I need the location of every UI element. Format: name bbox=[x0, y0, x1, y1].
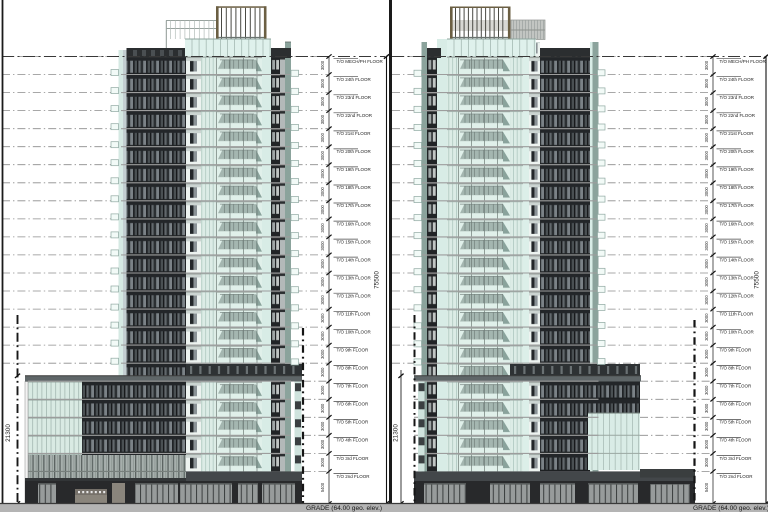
svg-text:T/O 4th FLOOR: T/O 4th FLOOR bbox=[337, 438, 370, 443]
svg-text:3000: 3000 bbox=[320, 60, 325, 70]
svg-text:T/O 6th FLOOR: T/O 6th FLOOR bbox=[337, 402, 370, 407]
svg-text:3000: 3000 bbox=[704, 403, 709, 413]
svg-text:T/O 22nd FLOOR: T/O 22nd FLOOR bbox=[337, 113, 373, 118]
svg-text:T/O 6th FLOOR: T/O 6th FLOOR bbox=[720, 402, 753, 407]
svg-text:3000: 3000 bbox=[704, 313, 709, 323]
svg-text:T/O 19th FLOOR: T/O 19th FLOOR bbox=[337, 167, 372, 172]
svg-text:T/O 7th FLOOR: T/O 7th FLOOR bbox=[720, 384, 753, 389]
svg-text:3000: 3000 bbox=[704, 277, 709, 287]
svg-text:T/O 17th FLOOR: T/O 17th FLOOR bbox=[720, 203, 755, 208]
svg-text:75500: 75500 bbox=[374, 271, 381, 289]
svg-text:3000: 3000 bbox=[320, 313, 325, 323]
svg-text:3000: 3000 bbox=[320, 259, 325, 269]
svg-text:3000: 3000 bbox=[704, 204, 709, 214]
svg-text:3000: 3000 bbox=[704, 186, 709, 196]
svg-text:3000: 3000 bbox=[320, 223, 325, 233]
svg-text:3000: 3000 bbox=[704, 457, 709, 467]
svg-text:3000: 3000 bbox=[320, 96, 325, 106]
svg-text:T/O 15th FLOOR: T/O 15th FLOOR bbox=[720, 239, 755, 244]
svg-text:3000: 3000 bbox=[320, 457, 325, 467]
svg-text:3000: 3000 bbox=[704, 439, 709, 449]
svg-text:3000: 3000 bbox=[704, 295, 709, 305]
svg-text:3000: 3000 bbox=[320, 78, 325, 88]
svg-text:3000: 3000 bbox=[704, 132, 709, 142]
svg-text:T/O 21st FLOOR: T/O 21st FLOOR bbox=[720, 131, 755, 136]
svg-text:T/O 14th FLOOR: T/O 14th FLOOR bbox=[720, 257, 755, 262]
svg-text:T/O 22nd FLOOR: T/O 22nd FLOOR bbox=[720, 113, 756, 118]
svg-text:T/O 21st FLOOR: T/O 21st FLOOR bbox=[337, 131, 372, 136]
svg-text:T/O 18th FLOOR: T/O 18th FLOOR bbox=[720, 185, 755, 190]
svg-text:3000: 3000 bbox=[320, 204, 325, 214]
svg-text:T/O 14th FLOOR: T/O 14th FLOOR bbox=[337, 257, 372, 262]
svg-text:3000: 3000 bbox=[320, 132, 325, 142]
svg-text:3000: 3000 bbox=[320, 186, 325, 196]
svg-text:T/O 24th FLOOR: T/O 24th FLOOR bbox=[337, 77, 372, 82]
svg-text:T/O 13th FLOOR: T/O 13th FLOOR bbox=[720, 275, 755, 280]
svg-text:3000: 3000 bbox=[320, 150, 325, 160]
svg-text:T/O 15th FLOOR: T/O 15th FLOOR bbox=[337, 239, 372, 244]
svg-text:T/O 23rd FLOOR: T/O 23rd FLOOR bbox=[720, 95, 755, 100]
svg-text:T/O 10th FLOOR: T/O 10th FLOOR bbox=[337, 330, 372, 335]
svg-text:T/O 4th FLOOR: T/O 4th FLOOR bbox=[720, 438, 753, 443]
svg-text:3000: 3000 bbox=[704, 78, 709, 88]
svg-text:T/O 17th FLOOR: T/O 17th FLOOR bbox=[337, 203, 372, 208]
svg-text:3000: 3000 bbox=[704, 331, 709, 341]
svg-text:5400: 5400 bbox=[320, 482, 325, 492]
svg-text:3000: 3000 bbox=[320, 168, 325, 178]
svg-text:T/O 16th FLOOR: T/O 16th FLOOR bbox=[720, 221, 755, 226]
svg-text:T/O MECH/PH FLOOR: T/O MECH/PH FLOOR bbox=[337, 59, 384, 64]
svg-text:3000: 3000 bbox=[704, 150, 709, 160]
svg-text:3000: 3000 bbox=[704, 168, 709, 178]
svg-text:T/O 5th FLOOR: T/O 5th FLOOR bbox=[720, 420, 753, 425]
svg-text:T/O 2nd FLOOR: T/O 2nd FLOOR bbox=[720, 474, 754, 479]
svg-text:3000: 3000 bbox=[704, 367, 709, 377]
svg-text:21300: 21300 bbox=[393, 424, 400, 442]
svg-text:3000: 3000 bbox=[320, 367, 325, 377]
svg-text:T/O 3rd FLOOR: T/O 3rd FLOOR bbox=[337, 456, 370, 461]
svg-text:T/O 7th FLOOR: T/O 7th FLOOR bbox=[337, 384, 370, 389]
svg-text:T/O 11th FLOOR: T/O 11th FLOOR bbox=[720, 312, 755, 317]
svg-text:T/O 9th FLOOR: T/O 9th FLOOR bbox=[337, 348, 370, 353]
svg-text:21300: 21300 bbox=[5, 424, 12, 442]
svg-text:3000: 3000 bbox=[320, 295, 325, 305]
svg-text:T/O 3rd FLOOR: T/O 3rd FLOOR bbox=[720, 456, 753, 461]
svg-text:3000: 3000 bbox=[320, 403, 325, 413]
svg-text:T/O 12th FLOOR: T/O 12th FLOOR bbox=[337, 293, 372, 298]
svg-text:3000: 3000 bbox=[320, 241, 325, 251]
svg-text:3000: 3000 bbox=[704, 241, 709, 251]
svg-text:T/O 12th FLOOR: T/O 12th FLOOR bbox=[720, 293, 755, 298]
svg-text:T/O 20th FLOOR: T/O 20th FLOOR bbox=[337, 149, 372, 154]
svg-text:3000: 3000 bbox=[704, 96, 709, 106]
svg-text:T/O 18th FLOOR: T/O 18th FLOOR bbox=[337, 185, 372, 190]
svg-text:3000: 3000 bbox=[320, 421, 325, 431]
svg-text:T/O 20th FLOOR: T/O 20th FLOOR bbox=[720, 149, 755, 154]
svg-text:T/O 10th FLOOR: T/O 10th FLOOR bbox=[720, 330, 755, 335]
svg-text:3000: 3000 bbox=[704, 259, 709, 269]
svg-text:T/O 9th FLOOR: T/O 9th FLOOR bbox=[720, 348, 753, 353]
svg-text:5400: 5400 bbox=[704, 482, 709, 492]
svg-text:T/O 8th FLOOR: T/O 8th FLOOR bbox=[720, 366, 753, 371]
svg-text:T/O 24th FLOOR: T/O 24th FLOOR bbox=[720, 77, 755, 82]
svg-text:T/O 8th FLOOR: T/O 8th FLOOR bbox=[337, 366, 370, 371]
svg-text:T/O 11th FLOOR: T/O 11th FLOOR bbox=[337, 312, 372, 317]
svg-text:T/O 2nd FLOOR: T/O 2nd FLOOR bbox=[337, 474, 371, 479]
svg-text:3000: 3000 bbox=[320, 385, 325, 395]
svg-text:3000: 3000 bbox=[704, 223, 709, 233]
svg-text:T/O 23rd FLOOR: T/O 23rd FLOOR bbox=[337, 95, 372, 100]
svg-text:3000: 3000 bbox=[704, 385, 709, 395]
svg-text:T/O 16th FLOOR: T/O 16th FLOOR bbox=[337, 221, 372, 226]
svg-text:GRADE (64.00 geo. elev.): GRADE (64.00 geo. elev.) bbox=[693, 505, 768, 512]
svg-text:3000: 3000 bbox=[320, 277, 325, 287]
svg-text:T/O MECH/PH FLOOR: T/O MECH/PH FLOOR bbox=[720, 59, 767, 64]
svg-text:3000: 3000 bbox=[704, 114, 709, 124]
svg-text:3000: 3000 bbox=[320, 349, 325, 359]
svg-text:T/O 5th FLOOR: T/O 5th FLOOR bbox=[337, 420, 370, 425]
svg-text:3000: 3000 bbox=[704, 349, 709, 359]
svg-text:GRADE (64.00 geo. elev.): GRADE (64.00 geo. elev.) bbox=[306, 505, 382, 512]
svg-text:3000: 3000 bbox=[320, 439, 325, 449]
svg-text:T/O 19th FLOOR: T/O 19th FLOOR bbox=[720, 167, 755, 172]
svg-text:3000: 3000 bbox=[704, 60, 709, 70]
svg-text:3000: 3000 bbox=[320, 114, 325, 124]
svg-text:3000: 3000 bbox=[320, 331, 325, 341]
svg-text:T/O 13th FLOOR: T/O 13th FLOOR bbox=[337, 275, 372, 280]
svg-text:75500: 75500 bbox=[754, 271, 761, 289]
svg-text:3000: 3000 bbox=[704, 421, 709, 431]
